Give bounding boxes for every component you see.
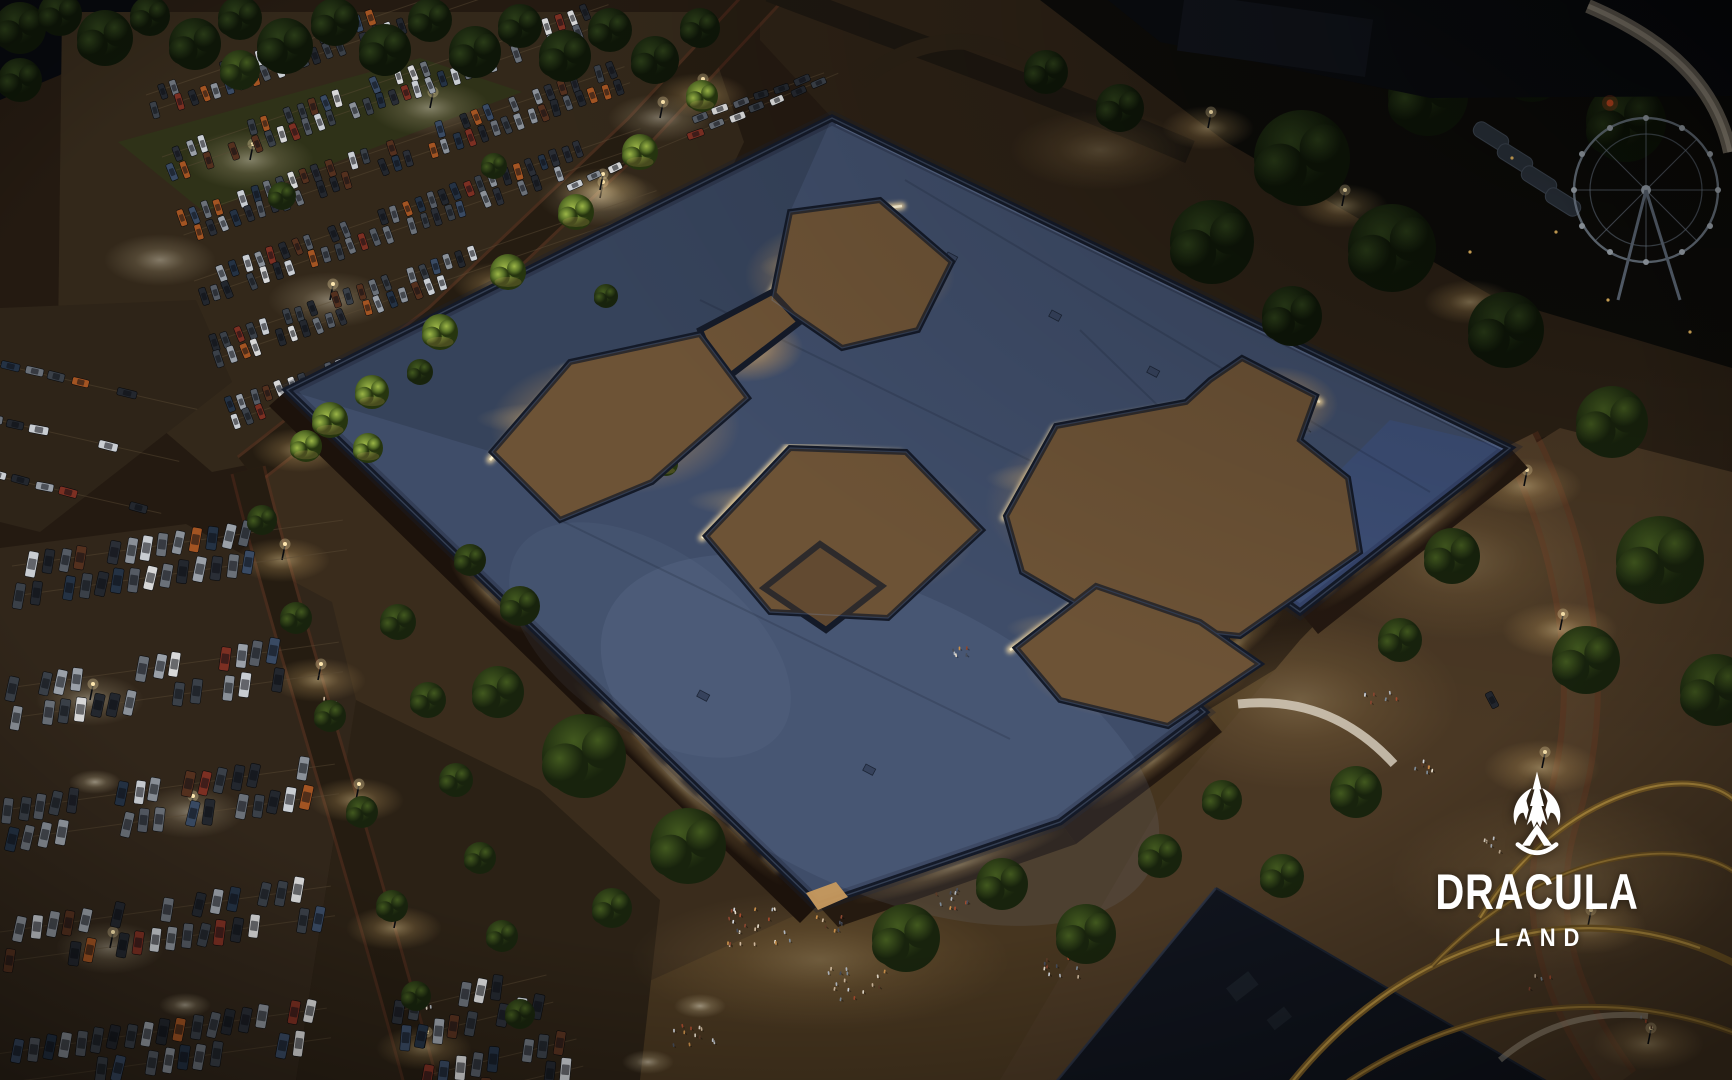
dracula-land-logo: DRACULA LAND: [1377, 770, 1697, 953]
logo-subtitle-text: LAND: [1396, 924, 1678, 953]
castle-crest-icon: [1505, 770, 1569, 860]
aerial-night-scene: DRACULA LAND: [0, 0, 1732, 1080]
logo-brand-text: DRACULA: [1409, 867, 1665, 917]
